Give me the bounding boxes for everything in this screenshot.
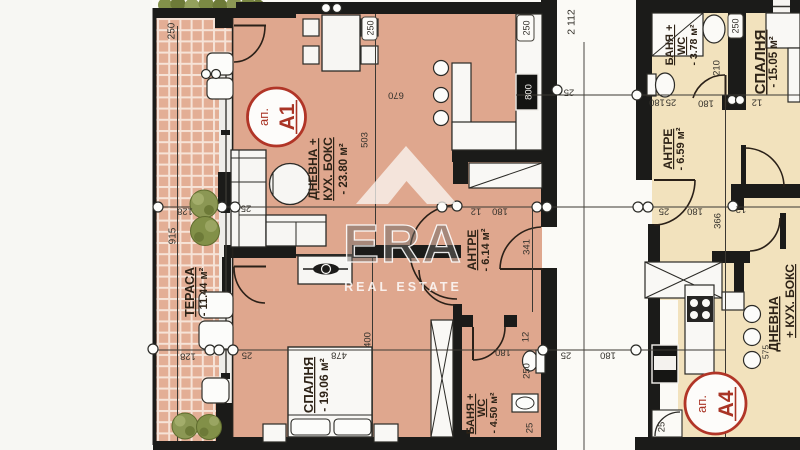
svg-text:180: 180 <box>492 206 508 217</box>
svg-text:478: 478 <box>331 350 347 361</box>
svg-text:- 4.50 м²: - 4.50 м² <box>488 392 500 434</box>
svg-text:250: 250 <box>731 18 741 33</box>
svg-text:250: 250 <box>366 20 376 35</box>
svg-text:800: 800 <box>524 84 535 100</box>
svg-text:25: 25 <box>525 423 536 434</box>
svg-text:250: 250 <box>167 22 178 39</box>
svg-text:25: 25 <box>666 97 677 108</box>
svg-text:503: 503 <box>360 132 371 148</box>
svg-text:25: 25 <box>659 206 670 217</box>
svg-text:БАНЯ +: БАНЯ + <box>664 25 676 66</box>
svg-text:25: 25 <box>241 203 252 214</box>
svg-text:915: 915 <box>168 227 179 244</box>
svg-text:ап.: ап. <box>256 108 271 126</box>
svg-text:СПАЛНЯ: СПАЛНЯ <box>752 30 769 95</box>
svg-text:12: 12 <box>736 204 747 215</box>
svg-text:128: 128 <box>180 351 196 362</box>
svg-text:- 11.44 м²: - 11.44 м² <box>198 267 210 316</box>
svg-text:АНТРЕ: АНТРЕ <box>661 129 675 170</box>
svg-text:АНТРЕ: АНТРЕ <box>465 230 479 271</box>
svg-text:210: 210 <box>712 60 723 76</box>
svg-text:180: 180 <box>687 206 703 217</box>
svg-text:- 6.14 м²: - 6.14 м² <box>480 228 492 271</box>
svg-text:180: 180 <box>698 98 714 109</box>
svg-text:+ КУХ. БОКС: + КУХ. БОКС <box>783 264 797 338</box>
svg-text:2 112: 2 112 <box>566 9 578 35</box>
svg-text:ДНЕВНА +: ДНЕВНА + <box>306 138 320 200</box>
svg-text:180: 180 <box>495 347 511 358</box>
svg-text:180: 180 <box>649 97 665 108</box>
svg-text:25: 25 <box>564 87 575 98</box>
svg-text:ап.: ап. <box>694 395 709 413</box>
svg-text:366: 366 <box>713 213 724 229</box>
svg-text:341: 341 <box>522 239 533 255</box>
svg-text:А4: А4 <box>715 390 738 417</box>
svg-text:250: 250 <box>522 20 532 35</box>
svg-text:- 3.78 м²: - 3.78 м² <box>688 24 700 66</box>
svg-text:СПАЛНЯ: СПАЛНЯ <box>301 357 316 413</box>
svg-text:25: 25 <box>657 422 668 433</box>
svg-text:ДНЕВНА: ДНЕВНА <box>766 296 781 352</box>
svg-text:400: 400 <box>363 332 374 348</box>
svg-text:12: 12 <box>752 97 763 108</box>
svg-text:25: 25 <box>561 350 572 361</box>
svg-text:25: 25 <box>242 350 253 361</box>
svg-text:12: 12 <box>471 206 482 217</box>
svg-text:А1: А1 <box>276 103 299 130</box>
svg-text:WC: WC <box>676 37 688 55</box>
svg-text:КУХ. БОКС: КУХ. БОКС <box>321 137 335 201</box>
svg-text:670: 670 <box>388 90 404 101</box>
svg-text:12: 12 <box>521 332 532 343</box>
svg-text:WC: WC <box>476 399 488 417</box>
svg-text:REAL ESTATE: REAL ESTATE <box>344 280 462 294</box>
svg-text:ТЕРАСА: ТЕРАСА <box>183 267 197 317</box>
svg-text:- 15.05 м²: - 15.05 м² <box>768 36 780 88</box>
svg-text:575: 575 <box>761 345 771 359</box>
svg-text:128: 128 <box>177 206 193 217</box>
svg-text:- 19.06 м²: - 19.06 м² <box>317 358 331 412</box>
svg-text:- 23.80 м²: - 23.80 м² <box>338 143 350 195</box>
svg-text:250: 250 <box>522 363 533 379</box>
svg-text:- 6.59 м²: - 6.59 м² <box>675 127 687 170</box>
svg-text:180: 180 <box>600 350 616 361</box>
svg-text:ERA: ERA <box>343 214 463 274</box>
